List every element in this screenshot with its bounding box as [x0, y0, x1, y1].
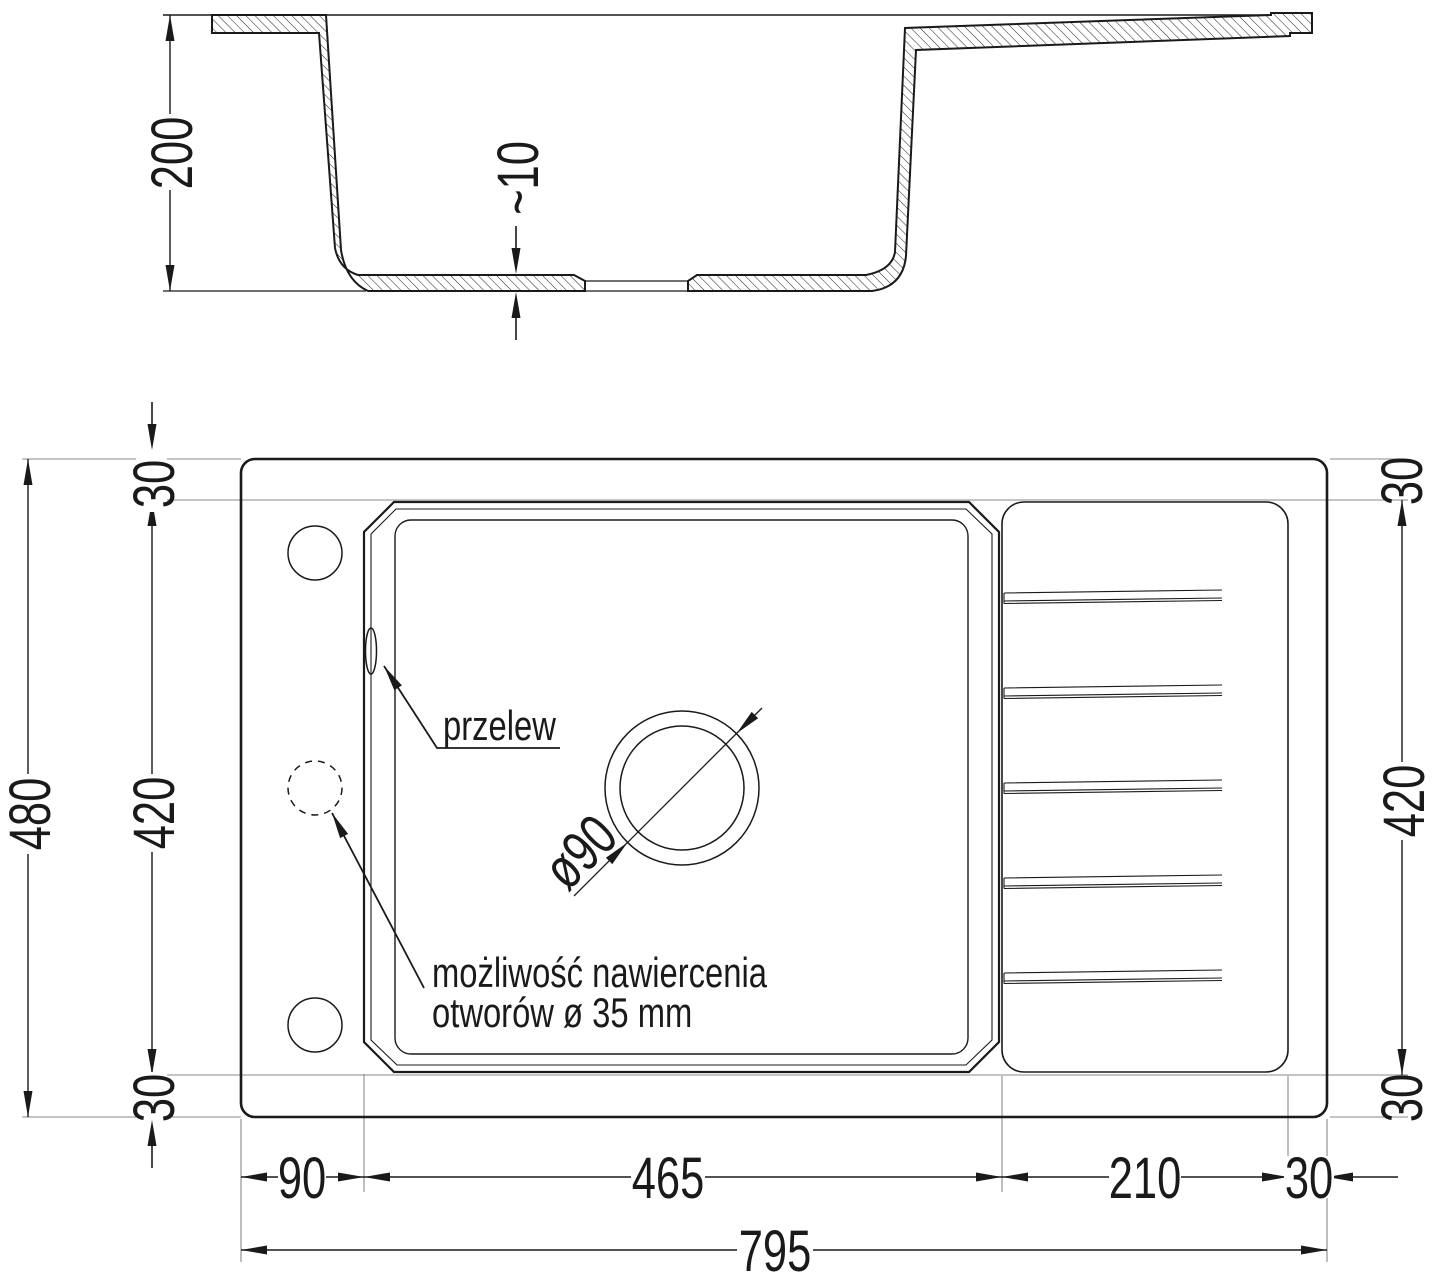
drawing-svg: 200 ~10	[0, 0, 1442, 1287]
arrow-right-icon	[976, 1173, 1002, 1182]
sink-technical-drawing: 200 ~10	[0, 0, 1442, 1287]
dim-label-480: 480	[0, 778, 62, 851]
dim-bottom-thickness-10: ~10	[486, 141, 550, 340]
arrow-icon	[384, 666, 402, 690]
drainer-rib	[1004, 875, 1222, 889]
drain: ø90	[531, 708, 762, 901]
arrow-right-icon	[338, 1173, 364, 1182]
drainer-rib	[1004, 780, 1222, 794]
dim-label-465: 465	[632, 1146, 705, 1210]
arrow-icon	[737, 712, 759, 734]
dim-label-90: 90	[278, 1146, 326, 1210]
dim-30-top-right: 30	[1370, 457, 1434, 505]
arrow-left-icon	[1002, 1173, 1028, 1182]
dim-label-30: 30	[1370, 457, 1434, 505]
dim-30-top-left: 30	[122, 402, 186, 512]
overflow-callout: przelew	[384, 666, 560, 749]
arrow-down-icon	[166, 265, 175, 291]
arrow-icon	[332, 813, 348, 838]
plan-view: ø90 przelew możliwość nawiercenia otworó…	[0, 402, 1436, 1283]
arrow-down-icon	[512, 248, 521, 274]
dim-label-210: 210	[1109, 1146, 1182, 1210]
arrow-up-icon	[24, 459, 33, 485]
drain-diameter-label: ø90	[531, 803, 630, 902]
arrow-left-icon	[364, 1173, 390, 1182]
dim-label-30: 30	[1285, 1146, 1333, 1210]
arrow-left-icon	[241, 1246, 267, 1255]
faucet-hole-bottom	[288, 998, 342, 1052]
section-right-profile	[688, 13, 1312, 291]
arrow-up-icon	[166, 15, 175, 41]
dim-label-200: 200	[140, 117, 204, 190]
dim-label-795: 795	[739, 1219, 812, 1283]
drainer-rib	[1004, 590, 1222, 604]
dim-depth-200: 200	[140, 15, 204, 291]
drainer-outline	[1002, 502, 1288, 1072]
dim-label-30: 30	[122, 460, 186, 508]
dim-30-bottom-left: 30	[122, 1072, 186, 1168]
drainer	[1002, 502, 1288, 1072]
dim-420-left: 420	[122, 500, 186, 1075]
dim-480-left: 480	[0, 459, 62, 1117]
arrow-down-icon	[148, 1049, 157, 1075]
dim-row-90-465-210-30: 90 465 210 30	[241, 1146, 1398, 1210]
dim-795: 795	[241, 1219, 1327, 1283]
dim-label-30: 30	[122, 1074, 186, 1122]
dim-label-420: 420	[1372, 765, 1436, 838]
section-view: 200 ~10	[140, 13, 1312, 340]
dim-label-420: 420	[122, 777, 186, 850]
drainer-ribs	[1004, 590, 1222, 984]
leader-line	[332, 813, 424, 988]
arrow-left-icon	[241, 1173, 267, 1182]
dim-label-10: ~10	[486, 141, 550, 215]
drainer-rib	[1004, 970, 1222, 984]
drainer-rib	[1004, 685, 1222, 699]
dim-420-right: 420	[1372, 500, 1436, 1075]
faucet-hole-top	[288, 526, 342, 580]
arrow-right-icon	[1301, 1246, 1327, 1255]
arrow-down-icon	[148, 424, 157, 450]
arrow-down-icon	[24, 1091, 33, 1117]
arrow-down-icon	[1398, 1049, 1407, 1075]
arrow-up-icon	[512, 292, 521, 318]
drill-note-line2: otworów ø 35 mm	[432, 989, 692, 1036]
overflow-label: przelew	[443, 702, 557, 749]
optional-hole-dashed	[288, 761, 342, 815]
dim-label-30: 30	[1370, 1074, 1434, 1122]
dim-30-bottom-right: 30	[1370, 1074, 1434, 1122]
sink-outline	[241, 459, 1327, 1117]
extension-lines	[22, 459, 1408, 1262]
